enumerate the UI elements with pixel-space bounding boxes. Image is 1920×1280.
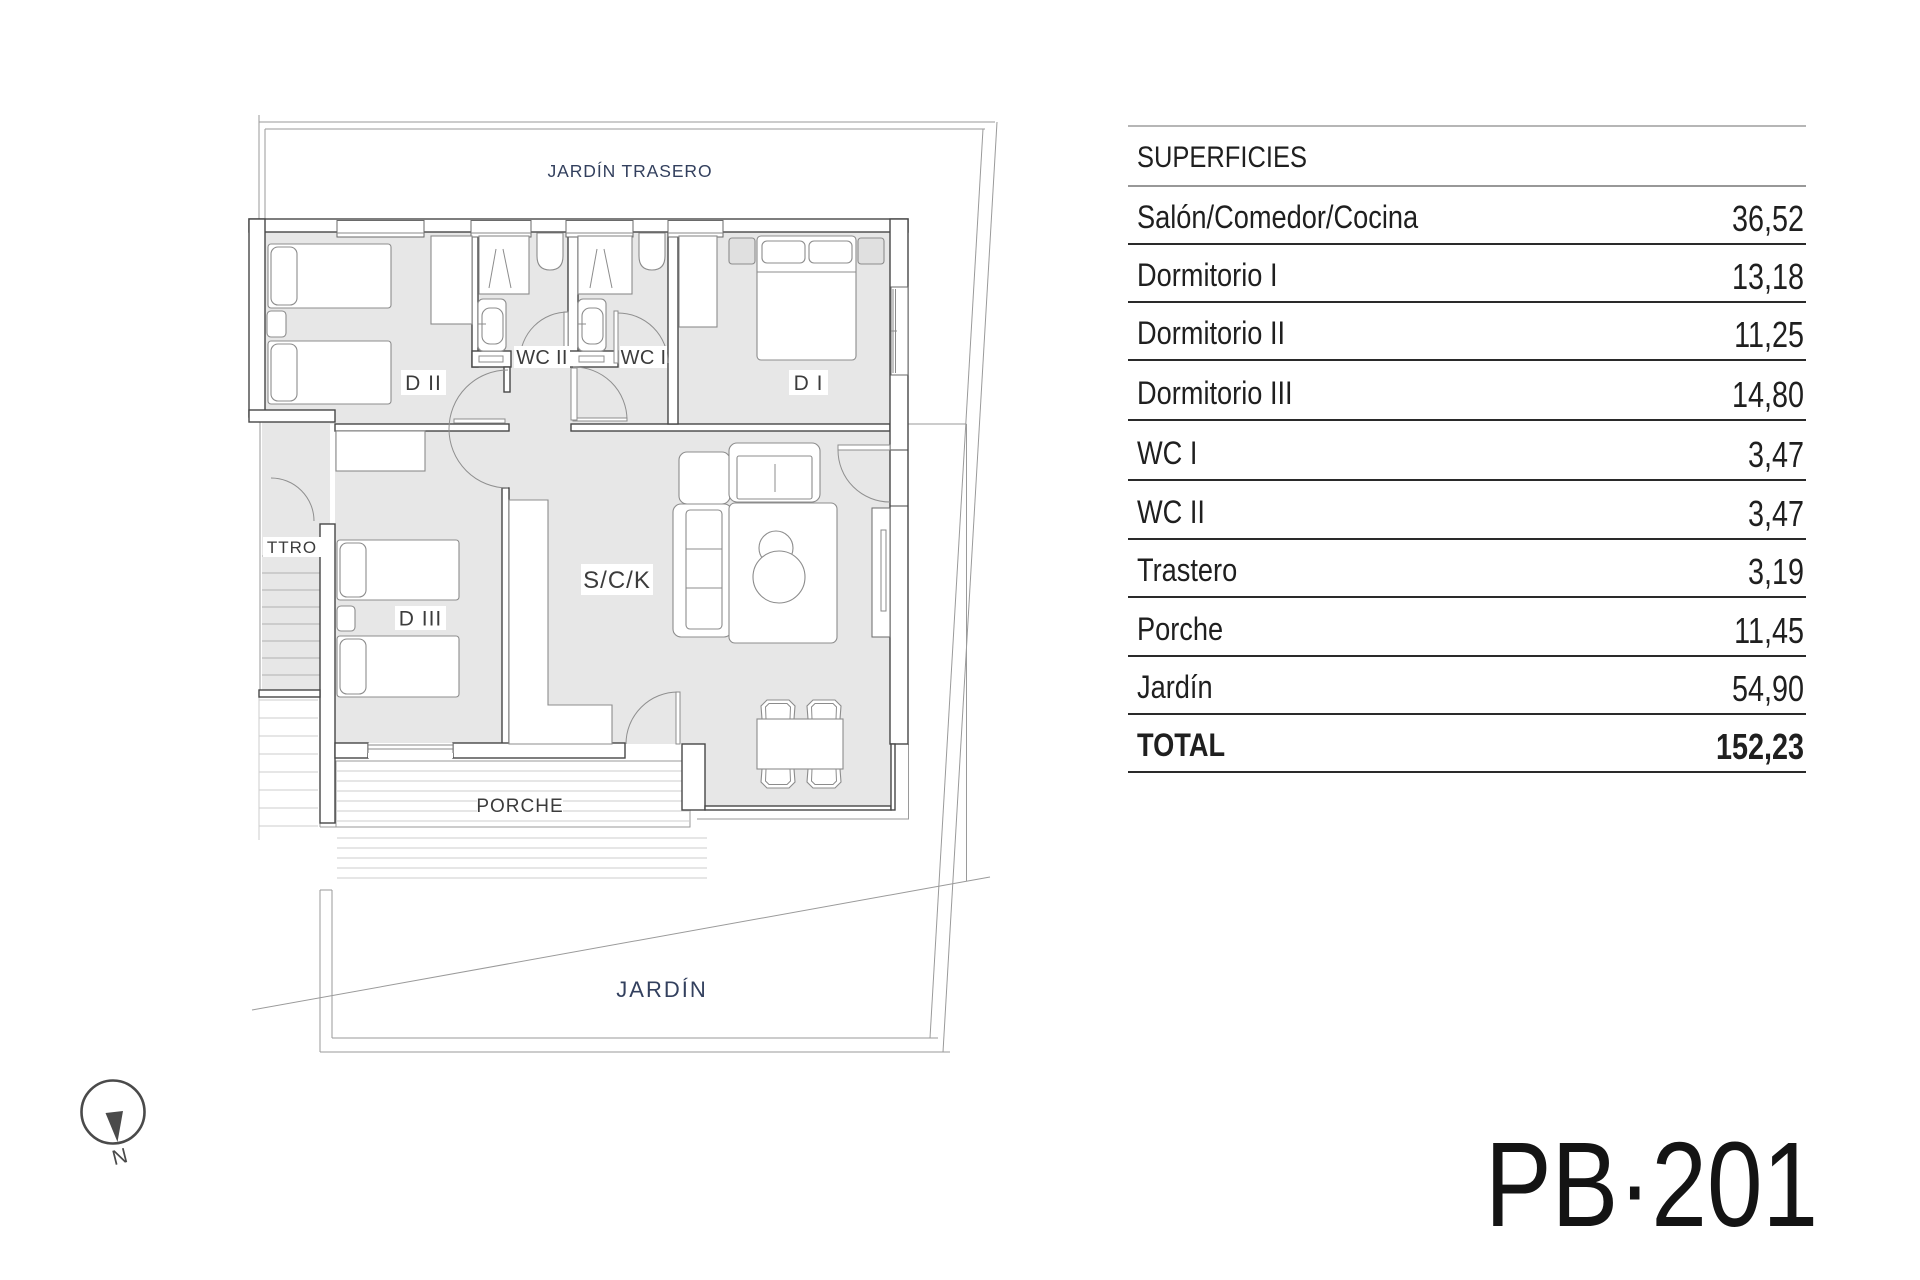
svg-text:152,23: 152,23 [1716, 726, 1804, 767]
svg-text:Salón/Comedor/Cocina: Salón/Comedor/Cocina [1137, 200, 1419, 236]
svg-text:SUPERFICIES: SUPERFICIES [1137, 140, 1307, 173]
svg-text:WC II: WC II [516, 347, 568, 369]
svg-text:Dormitorio II: Dormitorio II [1137, 316, 1285, 352]
svg-text:Trastero: Trastero [1137, 553, 1237, 589]
svg-text:Porche: Porche [1137, 612, 1223, 648]
svg-text:PB·201: PB·201 [1485, 1116, 1818, 1252]
svg-text:Dormitorio I: Dormitorio I [1137, 258, 1278, 294]
svg-text:S/C/K: S/C/K [583, 567, 651, 594]
svg-text:13,18: 13,18 [1732, 256, 1804, 297]
svg-text:Dormitorio III: Dormitorio III [1137, 376, 1293, 412]
svg-text:WC I: WC I [1137, 436, 1197, 472]
svg-text:D III: D III [399, 607, 443, 630]
svg-text:11,25: 11,25 [1734, 314, 1804, 355]
svg-text:JARDÍN: JARDÍN [616, 977, 707, 1002]
svg-text:Jardín: Jardín [1137, 670, 1213, 706]
svg-text:WC I: WC I [621, 347, 667, 369]
svg-text:PORCHE: PORCHE [476, 796, 563, 817]
svg-text:3,47: 3,47 [1748, 493, 1804, 534]
svg-text:D II: D II [405, 372, 442, 395]
svg-text:TTRO: TTRO [267, 538, 317, 557]
svg-text:36,52: 36,52 [1732, 198, 1804, 239]
svg-text:3,47: 3,47 [1748, 434, 1804, 475]
svg-text:D I: D I [794, 372, 824, 395]
svg-text:11,45: 11,45 [1734, 610, 1804, 651]
svg-text:JARDÍN TRASERO: JARDÍN TRASERO [548, 161, 713, 181]
svg-text:14,80: 14,80 [1732, 374, 1804, 415]
svg-text:3,19: 3,19 [1748, 551, 1804, 592]
svg-text:TOTAL: TOTAL [1137, 728, 1225, 764]
svg-text:WC II: WC II [1137, 495, 1205, 531]
svg-text:54,90: 54,90 [1732, 668, 1804, 709]
